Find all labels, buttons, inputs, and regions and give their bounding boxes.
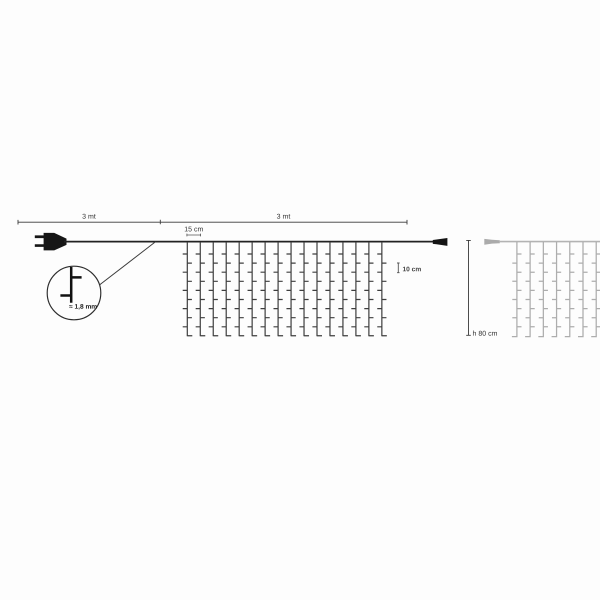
svg-text:10 cm: 10 cm: [402, 266, 421, 273]
svg-text:3 mt: 3 mt: [82, 214, 96, 221]
svg-text:≈ 1,8 mm: ≈ 1,8 mm: [69, 304, 97, 311]
svg-text:3 mt: 3 mt: [277, 214, 291, 221]
svg-text:15 cm: 15 cm: [184, 226, 203, 233]
svg-text:h 80 cm: h 80 cm: [472, 331, 497, 338]
